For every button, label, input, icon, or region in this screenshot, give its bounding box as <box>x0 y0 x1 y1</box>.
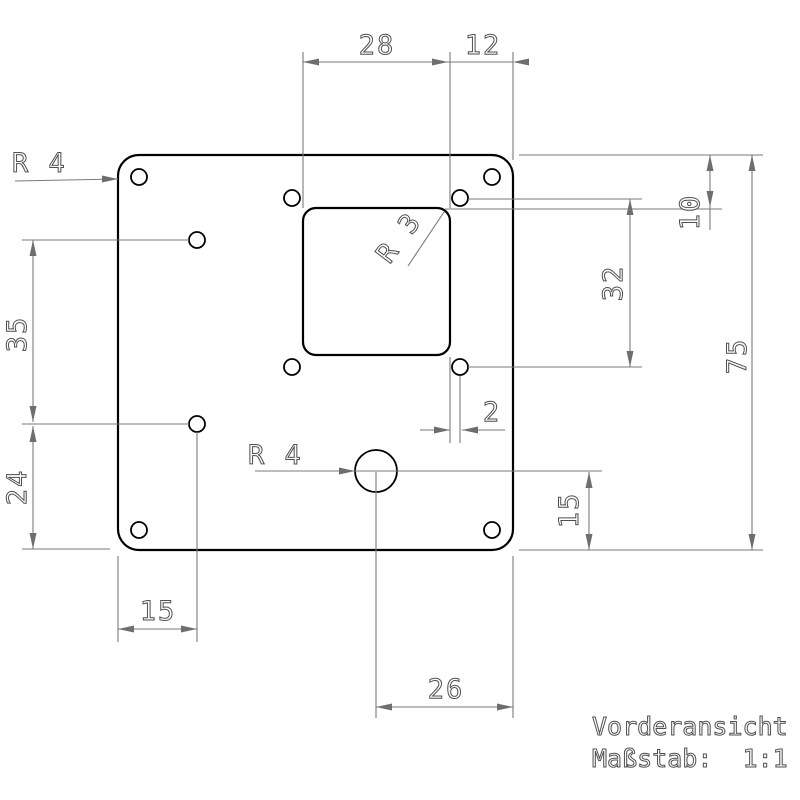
arrowhead <box>303 59 319 66</box>
corner-hole-top-right <box>484 169 500 185</box>
arrowhead <box>118 626 134 633</box>
dim-label-12: 12 <box>465 30 502 61</box>
title-block: Vorderansicht Maßstab: 1:1 <box>592 712 788 773</box>
arrowhead <box>181 626 197 633</box>
dim-label-26: 26 <box>428 674 465 705</box>
arrowhead <box>627 351 634 367</box>
arrowhead <box>586 534 593 550</box>
drawing-sheet: 28 12 10 32 75 35 24 15 2 15 26 R 4 R 4 … <box>0 0 800 800</box>
arrowhead <box>30 406 37 422</box>
arrowhead <box>513 59 529 66</box>
arrowhead <box>627 199 634 215</box>
dim-label-10: 10 <box>675 194 706 231</box>
center-cutout <box>303 208 450 355</box>
dim-label-75: 75 <box>722 338 753 375</box>
corner-hole-top-left <box>131 169 147 185</box>
scale-label: Maßstab: 1:1 <box>592 744 788 773</box>
pattern-hole-top-right <box>452 190 468 206</box>
dim-label-28: 28 <box>359 30 396 61</box>
arrowhead <box>102 176 118 183</box>
dim-label-15-right: 15 <box>554 492 585 529</box>
part-geometry <box>118 155 513 550</box>
technical-drawing-canvas: 28 12 10 32 75 35 24 15 2 15 26 R 4 R 4 … <box>0 0 800 800</box>
arrowhead <box>376 704 392 711</box>
arrowhead <box>497 704 513 711</box>
left-hole-lower <box>189 416 205 432</box>
pattern-hole-bottom-right <box>452 359 468 375</box>
dim-label-2: 2 <box>483 397 501 428</box>
corner-hole-bottom-left <box>131 522 147 538</box>
arrowhead <box>586 472 593 488</box>
dim-label-32: 32 <box>598 265 629 302</box>
left-hole-upper <box>189 232 205 248</box>
dim-label-35: 35 <box>2 316 33 353</box>
arrowhead <box>30 426 37 442</box>
corner-hole-bottom-right <box>484 522 500 538</box>
radius-label-corner: R 4 <box>12 148 67 179</box>
arrowhead <box>707 155 714 171</box>
dim-label-15-left: 15 <box>140 596 177 627</box>
arrowhead <box>749 534 756 550</box>
arrowhead <box>749 155 756 171</box>
view-title: Vorderansicht <box>592 712 788 741</box>
pattern-hole-bottom-left <box>284 359 300 375</box>
pattern-hole-top-left <box>284 190 300 206</box>
arrowhead <box>30 240 37 256</box>
radius-label-center-hole: R 4 <box>248 440 303 471</box>
dim-label-24: 24 <box>2 469 33 506</box>
arrowhead <box>432 59 448 66</box>
arrowhead <box>30 533 37 549</box>
arrowhead <box>707 191 714 207</box>
